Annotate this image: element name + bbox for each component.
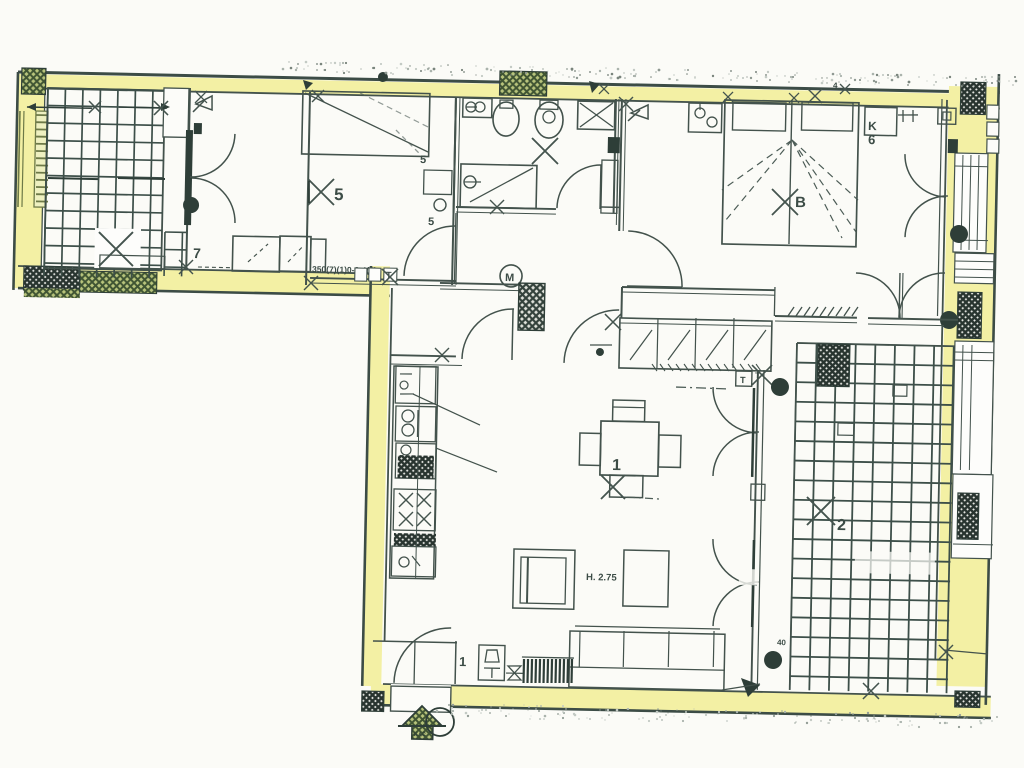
svg-text:5: 5: [420, 154, 426, 166]
svg-text:7: 7: [193, 245, 201, 261]
svg-text:H. 2.75: H. 2.75: [586, 572, 618, 584]
svg-text:6: 6: [868, 132, 876, 147]
svg-text:5: 5: [334, 185, 344, 204]
svg-text:4: 4: [833, 81, 838, 90]
svg-text:1: 1: [459, 654, 467, 669]
svg-text:5: 5: [428, 216, 434, 228]
svg-text:T: T: [740, 375, 746, 385]
svg-text:40: 40: [777, 638, 787, 647]
svg-text:KAC: KAC: [414, 732, 426, 738]
svg-text:1: 1: [612, 457, 621, 474]
svg-text:2: 2: [837, 517, 846, 534]
svg-text:T: T: [755, 371, 760, 380]
svg-text:M: M: [505, 272, 514, 284]
svg-text:B: B: [795, 194, 806, 211]
